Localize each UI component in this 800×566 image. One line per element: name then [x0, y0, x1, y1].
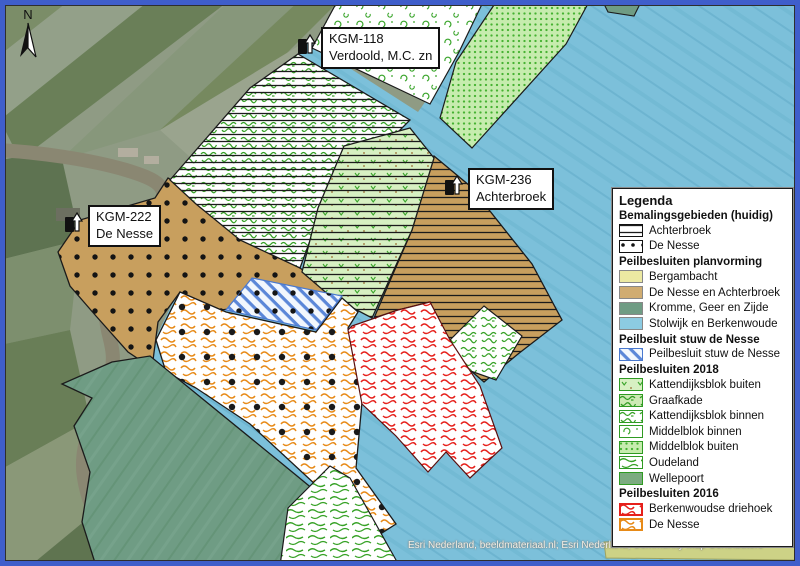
swatch-katbinnen-icon [619, 410, 643, 423]
legend-item-oudeland: Oudeland [619, 455, 788, 471]
north-arrow-icon [16, 22, 40, 60]
legend-item-kromme-geer-en-zijde: Kromme, Geer en Zijde [619, 300, 788, 316]
legend-item-graafkade: Graafkade [619, 393, 788, 409]
station-id: KGM-118 [329, 31, 432, 48]
station-label: KGM-236 Achterbroek [468, 168, 554, 210]
swatch-stolwijk-icon [619, 317, 643, 330]
station-kgm-118[interactable]: KGM-118 Verdoold, M.C. zn [297, 27, 440, 69]
legend-header-stuw: Peilbesluit stuw de Nesse [619, 334, 788, 346]
swatch-wellepoort-icon [619, 472, 643, 485]
swatch-tan-icon [619, 286, 643, 299]
legend-item-kattendijksblok-buiten: Kattendijksblok buiten [619, 377, 788, 393]
station-name: Verdoold, M.C. zn [329, 48, 432, 65]
swatch-bergambacht-icon [619, 270, 643, 283]
station-name: Achterbroek [476, 189, 546, 206]
legend-item-middelblok-buiten: Middelblok buiten [619, 440, 788, 456]
swatch-kromme-icon [619, 302, 643, 315]
legend-item-wellepoort: Wellepoort [619, 471, 788, 487]
swatch-hatch-icon [619, 348, 643, 361]
pumping-station-icon [64, 211, 84, 234]
legend-item-achterbroek-huidig: Achterbroek [619, 223, 788, 239]
swatch-de-nesse-2016-icon [619, 518, 643, 531]
station-name: De Nesse [96, 226, 153, 243]
swatch-katbuiten-icon [619, 378, 643, 391]
swatch-berkenwoudse-icon [619, 503, 643, 516]
pumping-station-icon [444, 174, 464, 197]
legend-item-bergambacht: Bergambacht [619, 269, 788, 285]
legend-item-berkenwoudse-driehoek: Berkenwoudse driehoek [619, 501, 788, 517]
legend-header-planvorming: Peilbesluiten planvorming [619, 256, 788, 268]
legend-item-peilbesluit-stuw: Peilbesluit stuw de Nesse [619, 347, 788, 363]
legend-header-bemalingsgebieden: Bemalingsgebieden (huidig) [619, 210, 788, 222]
swatch-mbbuiten-icon [619, 441, 643, 454]
swatch-graafkade-icon [619, 394, 643, 407]
legend-item-de-nesse-2016: De Nesse [619, 517, 788, 533]
swatch-achterbroek-lines-icon [619, 224, 643, 237]
pumping-station-icon [297, 33, 317, 56]
swatch-oudeland-icon [619, 456, 643, 469]
station-kgm-222[interactable]: KGM-222 De Nesse [64, 205, 161, 247]
legend-item-middelblok-binnen: Middelblok binnen [619, 424, 788, 440]
map-window: N KGM-118 Verdoold, M.C. zn KGM-222 De N… [0, 0, 800, 566]
legend-header-2018: Peilbesluiten 2018 [619, 364, 788, 376]
legend-item-stolwijk-en-berkenwoude: Stolwijk en Berkenwoude [619, 316, 788, 332]
station-label: KGM-222 De Nesse [88, 205, 161, 247]
legend-item-kattendijksblok-binnen: Kattendijksblok binnen [619, 408, 788, 424]
north-arrow: N [16, 8, 40, 60]
swatch-de-nesse-dots-icon [619, 240, 643, 253]
legend-item-de-nesse-en-achterbroek: De Nesse en Achterbroek [619, 285, 788, 301]
station-label: KGM-118 Verdoold, M.C. zn [321, 27, 440, 69]
legend-title: Legenda [619, 193, 788, 208]
station-kgm-236[interactable]: KGM-236 Achterbroek [444, 168, 554, 210]
legend-item-de-nesse-huidig: De Nesse [619, 239, 788, 255]
legend-panel: Legenda Bemalingsgebieden (huidig) Achte… [612, 188, 793, 547]
station-id: KGM-222 [96, 209, 153, 226]
legend-header-2016: Peilbesluiten 2016 [619, 488, 788, 500]
swatch-mbbinnen-icon [619, 425, 643, 438]
north-label: N [23, 8, 32, 21]
station-id: KGM-236 [476, 172, 546, 189]
